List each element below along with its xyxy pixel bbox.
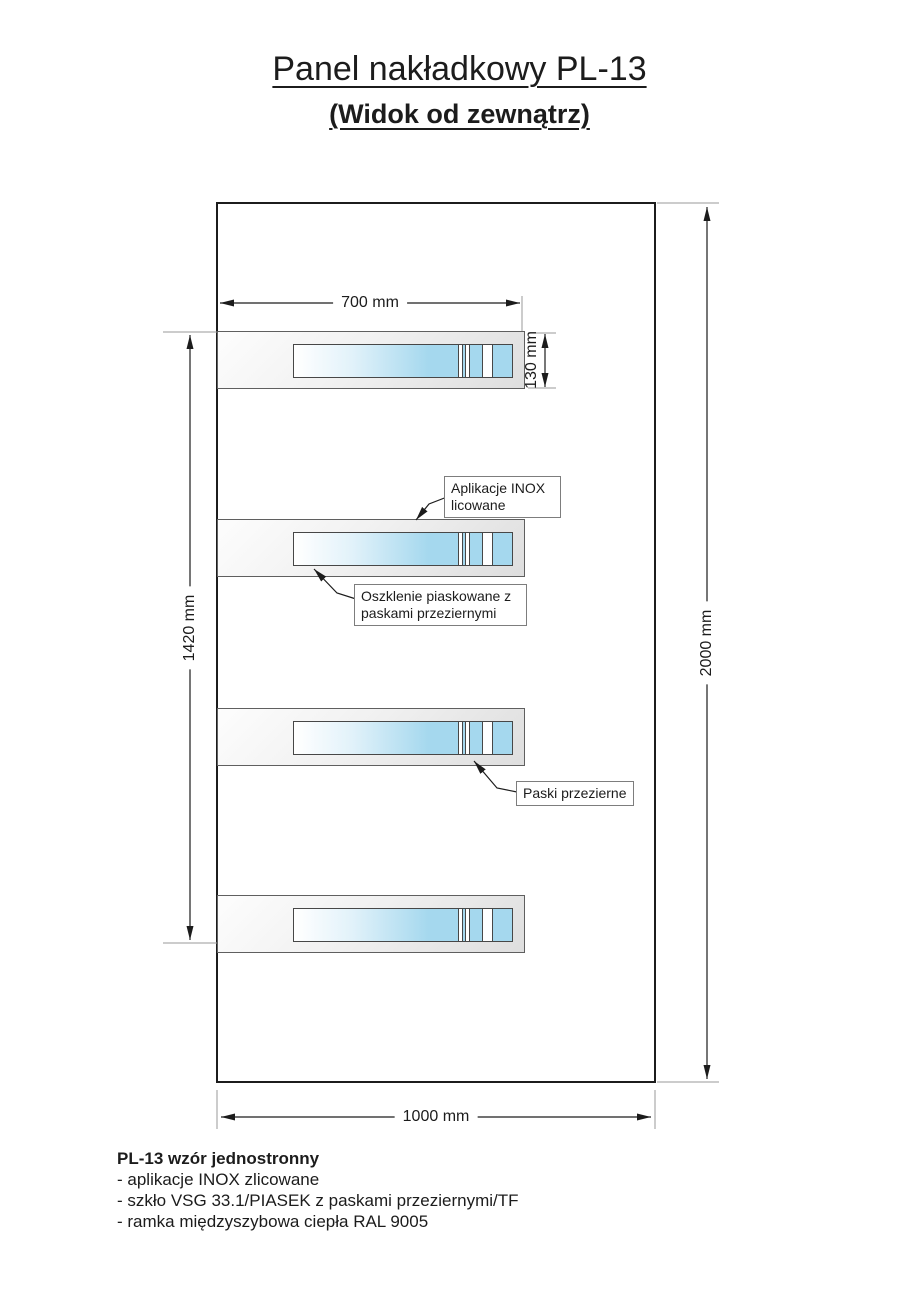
clear-stripe (482, 533, 493, 565)
specification-notes: PL-13 wzór jednostronny - aplikacje INOX… (117, 1148, 519, 1232)
dim-strip-height: 130 mm (523, 331, 541, 389)
callout-inox: Aplikacje INOX licowane (444, 476, 561, 518)
sandblasted-glass (294, 722, 458, 754)
glazing-strip-3 (217, 708, 525, 766)
sandblasted-glass (294, 345, 458, 377)
callout-glazing: Oszklenie piaskowane z paskami przeziern… (354, 584, 527, 626)
glazing-strip-1 (217, 331, 525, 389)
glass-pane-1 (293, 344, 513, 378)
title-block: Panel nakładkowy PL-13 (Widok od zewnątr… (0, 50, 919, 130)
note-line: - ramka międzyszybowa ciepła RAL 9005 (117, 1211, 519, 1232)
glass-pane-2 (293, 532, 513, 566)
sandblasted-glass (294, 533, 458, 565)
callout-stripes: Paski przezierne (516, 781, 634, 806)
technical-drawing-page: Panel nakładkowy PL-13 (Widok od zewnątr… (0, 0, 919, 1300)
note-line: - szkło VSG 33.1/PIASEK z paskami przezi… (117, 1190, 519, 1211)
glass-pane-3 (293, 721, 513, 755)
glass-pane-4 (293, 908, 513, 942)
clear-stripe (482, 345, 493, 377)
note-line: - aplikacje INOX zlicowane (117, 1169, 519, 1190)
notes-heading: PL-13 wzór jednostronny (117, 1148, 519, 1169)
dim-strip-width: 700 mm (333, 294, 407, 312)
sandblasted-glass (294, 909, 458, 941)
glazing-strip-2 (217, 519, 525, 577)
drawing-title: Panel nakładkowy PL-13 (0, 50, 919, 89)
dim-strips-span: 1420 mm (181, 587, 199, 670)
clear-stripe (482, 722, 493, 754)
dim-panel-height: 2000 mm (698, 602, 716, 685)
clear-stripe (482, 909, 493, 941)
dim-panel-width: 1000 mm (395, 1108, 478, 1126)
drawing-subtitle: (Widok od zewnątrz) (0, 99, 919, 130)
glazing-strip-4 (217, 895, 525, 953)
